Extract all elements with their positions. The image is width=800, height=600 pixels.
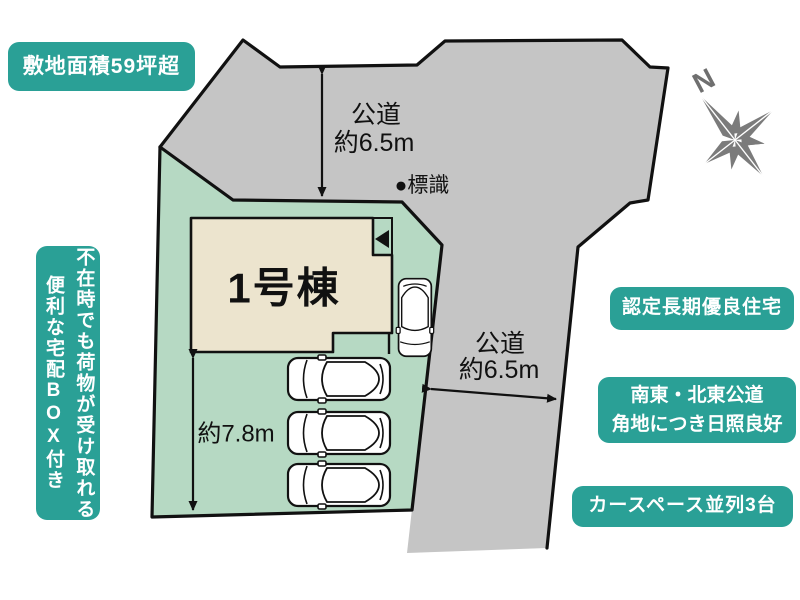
car-vertical	[396, 279, 433, 357]
building-label: 1号棟	[227, 255, 340, 316]
car-2	[288, 409, 390, 457]
badge-delivery-box: 不在時でも荷物が受け取れる 便利な宅配BOX付き	[36, 246, 100, 520]
compass-rose-icon	[670, 66, 800, 201]
sign-label: ●標識	[395, 169, 450, 199]
site-plan-page: 公道 約6.5m ●標識 公道 約6.5m 約7.8m 1号棟 N 敷地面積59…	[0, 0, 800, 600]
car-3	[288, 461, 390, 509]
road-top-width-label: 約6.5m	[334, 123, 415, 159]
badge-certified-housing: 認定長期優良住宅	[610, 287, 794, 330]
lot-depth-label: 約7.8m	[197, 414, 274, 449]
road-right-width-label: 約6.5m	[459, 350, 540, 386]
badge-site-area: 敷地面積59坪超	[8, 42, 195, 91]
badge-corner-sunlight: 南東・北東公道 角地につき日照良好	[598, 377, 796, 443]
badge-car-space: カースペース並列3台	[572, 486, 793, 527]
car-1	[288, 355, 390, 403]
